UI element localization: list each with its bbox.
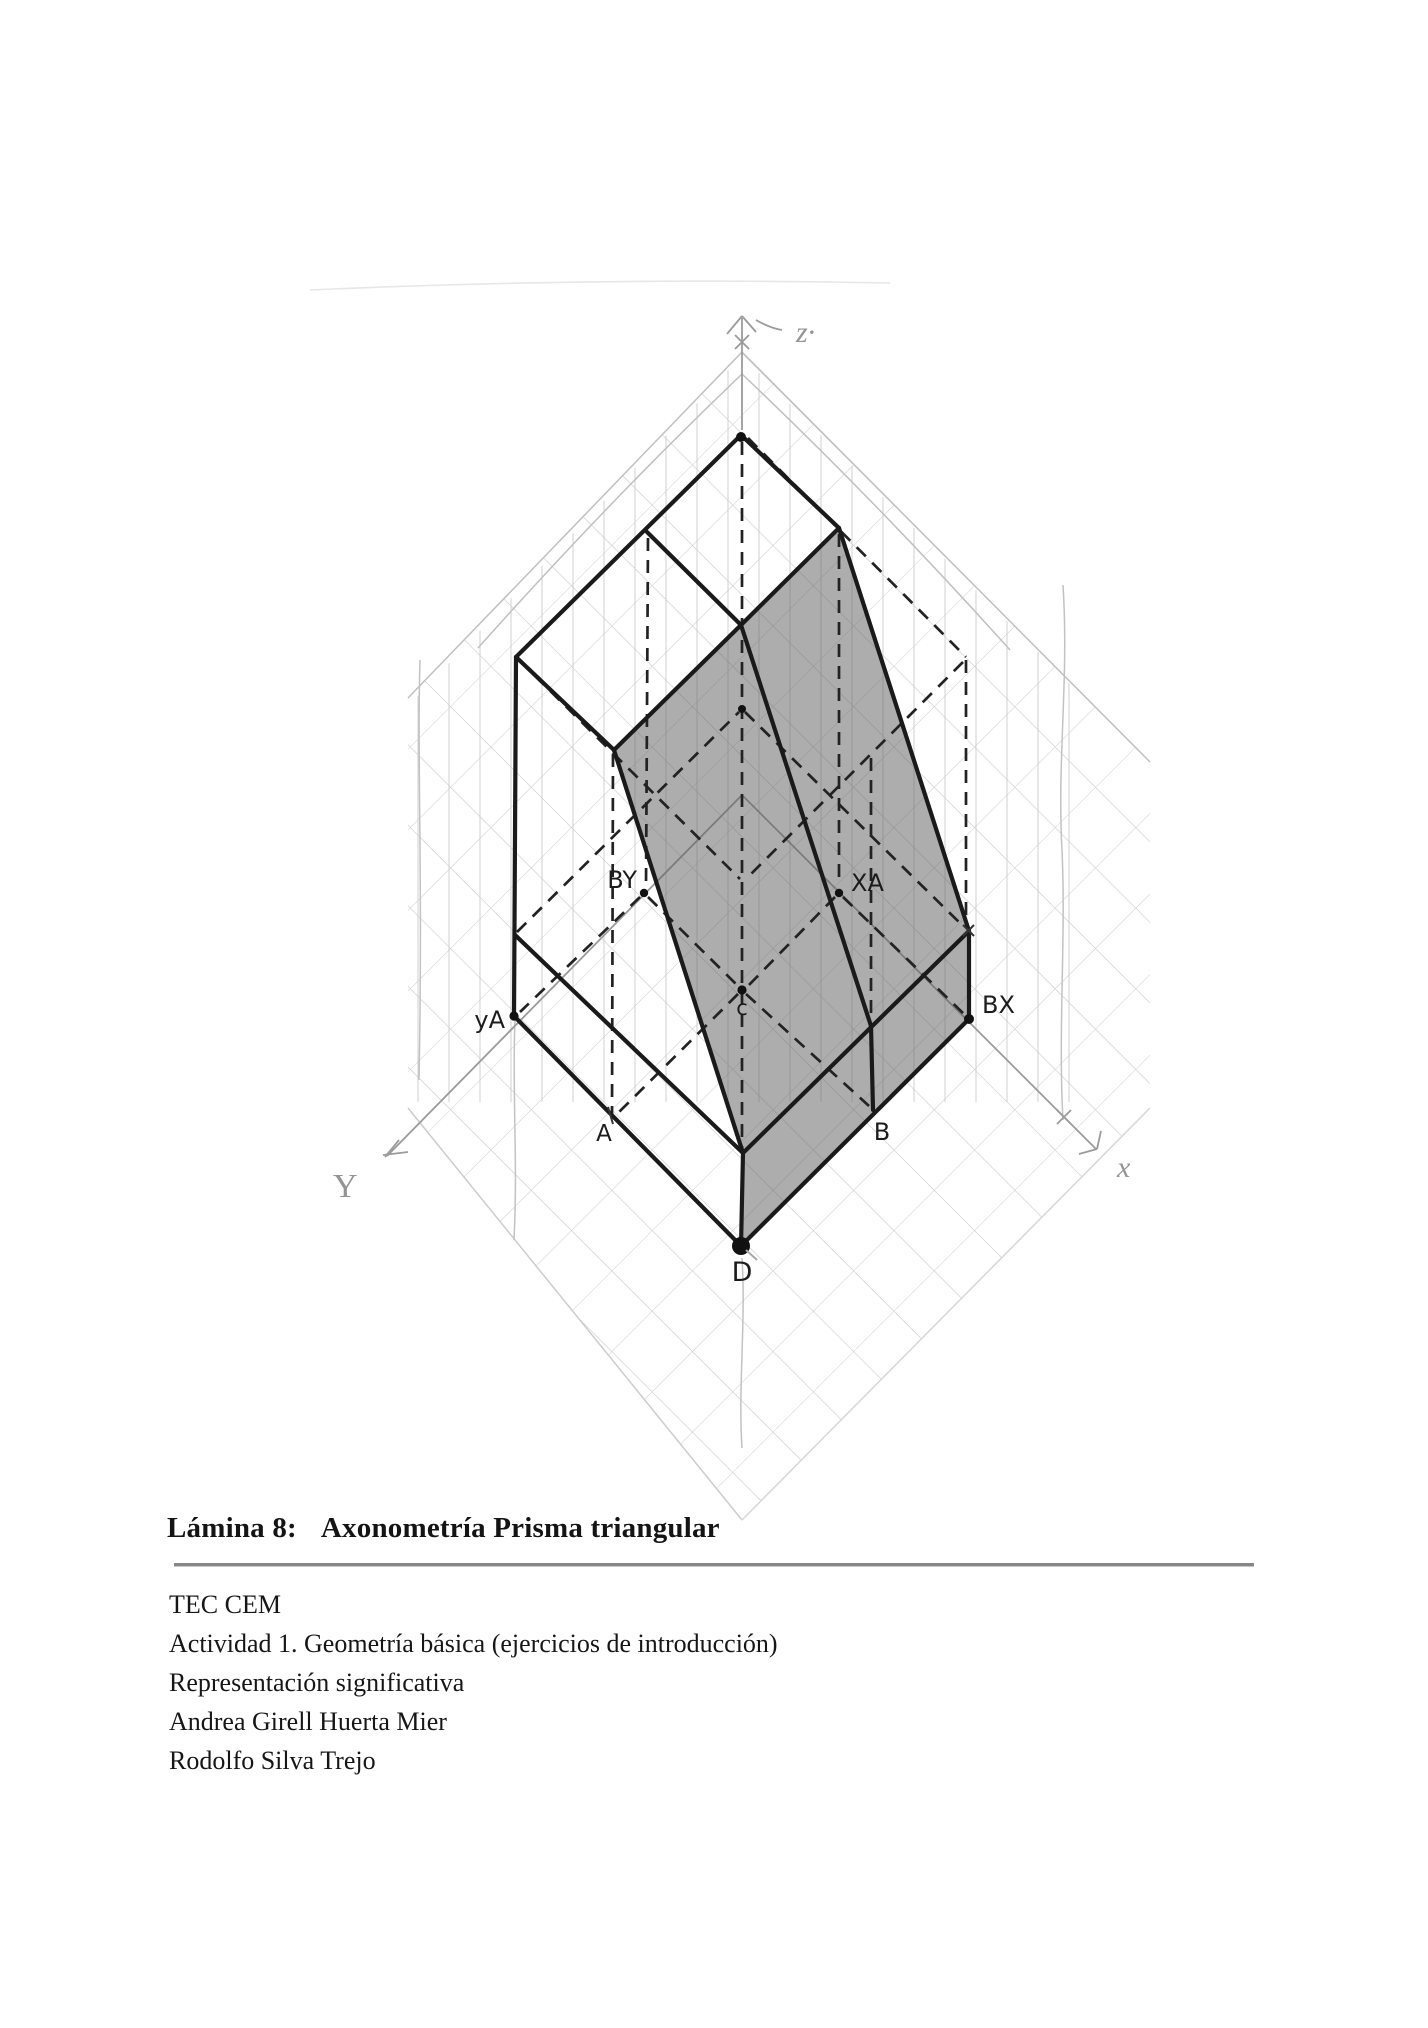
y-axis-label: Y — [333, 1168, 358, 1205]
credit-line-institution: TEC CEM — [169, 1585, 778, 1624]
label-c: c — [736, 996, 748, 1020]
label-by: BY — [607, 866, 637, 894]
label-xa: XA — [851, 869, 884, 897]
credit-line-representation: Representación significativa — [169, 1663, 778, 1702]
label-ya: yA — [474, 1006, 505, 1034]
label-d: D — [732, 1257, 753, 1288]
z-axis-label: z· — [795, 316, 815, 349]
label-b: B — [874, 1118, 890, 1146]
caption-label: Lámina 8: — [167, 1512, 297, 1544]
back-corner-point — [738, 705, 746, 713]
x-axis-label: x — [1116, 1151, 1131, 1184]
point-ya — [509, 1011, 518, 1020]
point-by — [640, 889, 648, 897]
credit-line-activity: Actividad 1. Geometría básica (ejercicio… — [169, 1624, 778, 1663]
label-bx: BX — [982, 991, 1015, 1019]
credit-line-author-2: Rodolfo Silva Trejo — [169, 1741, 778, 1780]
caption-title: Axonometría Prisma triangular — [321, 1512, 720, 1544]
point-bx — [964, 1014, 974, 1024]
document-page: z· Y x — [0, 0, 1428, 2028]
point-xa — [835, 889, 843, 897]
label-a: A — [596, 1121, 612, 1147]
point-c — [737, 985, 746, 994]
figure-caption: Lámina 8:Axonometría Prisma triangular — [167, 1512, 720, 1545]
credits-block: TEC CEM Actividad 1. Geometría básica (e… — [169, 1585, 778, 1780]
caption-rule — [174, 1563, 1254, 1567]
apex-point — [736, 432, 746, 442]
credit-line-author-1: Andrea Girell Huerta Mier — [169, 1702, 778, 1741]
